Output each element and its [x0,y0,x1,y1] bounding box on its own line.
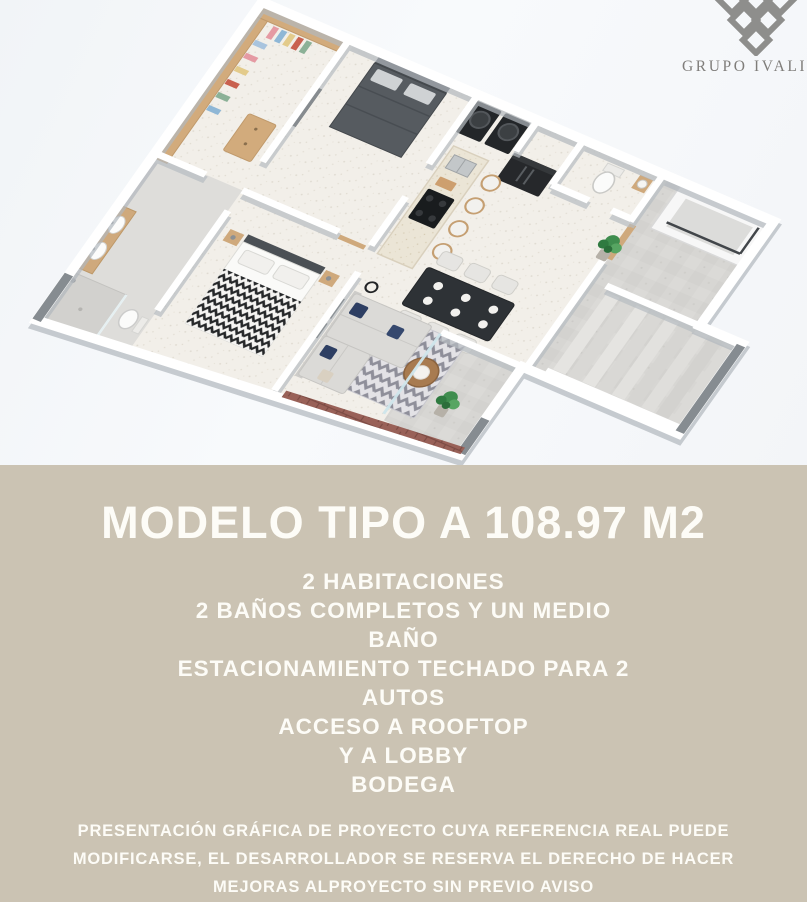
diamond-lattice-icon [704,0,807,56]
flyer-page: GRUPO IVALIVA MODELO TIPO A 108.97 M2 2 … [0,0,807,902]
feature-line: ESTACIONAMIENTO TECHADO PARA 2 [0,654,807,683]
disclaimer-line: MODIFICARSE, EL DESARROLLADOR SE RESERVA… [0,845,807,873]
model-title: MODELO TIPO A 108.97 M2 [0,499,807,547]
logo-text: GRUPO IVALIVA [682,58,807,76]
disclaimer-line: PRESENTACIÓN GRÁFICA DE PROYECTO CUYA RE… [0,817,807,845]
feature-line: AUTOS [0,683,807,712]
logo: GRUPO IVALIVA [682,0,807,76]
floorplan-hero: GRUPO IVALIVA [0,0,807,465]
disclaimer-line: MEJORAS ALPROYECTO SIN PREVIO AVISO [0,873,807,901]
feature-line: 2 HABITACIONES [0,567,807,596]
feature-line: BODEGA [0,770,807,799]
disclaimer: PRESENTACIÓN GRÁFICA DE PROYECTO CUYA RE… [0,817,807,901]
feature-line: 2 BAÑOS COMPLETOS Y UN MEDIO [0,596,807,625]
feature-list: 2 HABITACIONES2 BAÑOS COMPLETOS Y UN MED… [0,567,807,799]
feature-line: ACCESO A ROOFTOP [0,712,807,741]
info-panel: MODELO TIPO A 108.97 M2 2 HABITACIONES2 … [0,465,807,902]
feature-line: Y A LOBBY [0,741,807,770]
feature-line: BAÑO [0,625,807,654]
